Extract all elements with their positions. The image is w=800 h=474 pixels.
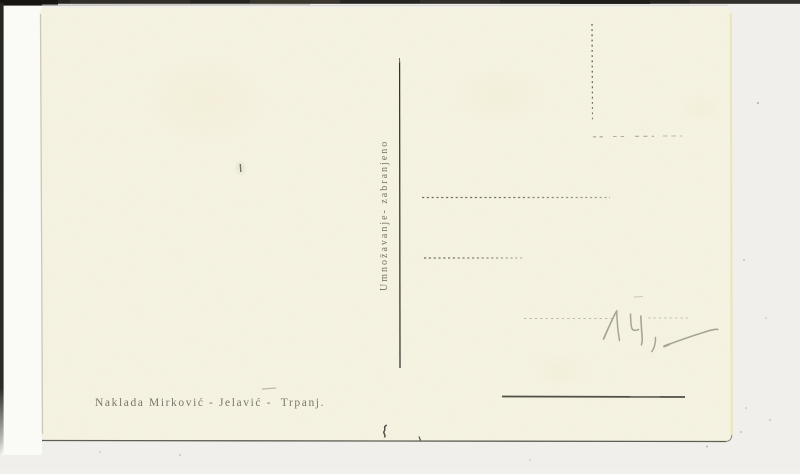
svg-text:Naklada Mirković - Jelavić -: Naklada Mirković - Jelavić - Trpanj. (95, 397, 325, 409)
svg-text:Umnožavanje- zabranjeno: Umnožavanje- zabranjeno (379, 140, 390, 291)
